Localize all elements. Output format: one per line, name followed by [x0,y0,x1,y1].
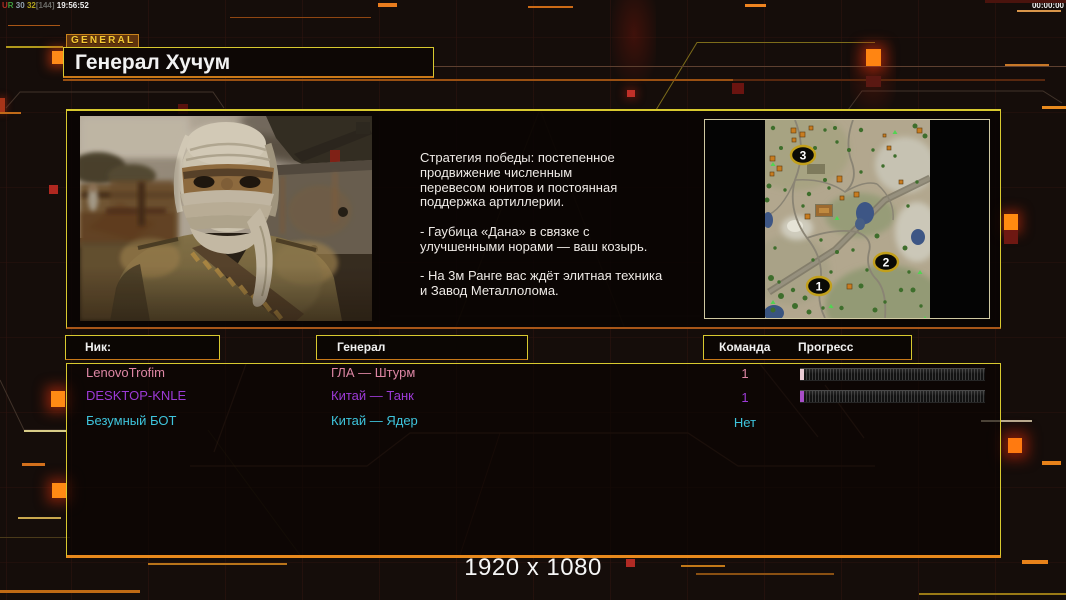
svg-text:1: 1 [816,280,823,294]
svg-text:3: 3 [800,149,807,163]
svg-text:2: 2 [883,256,890,270]
